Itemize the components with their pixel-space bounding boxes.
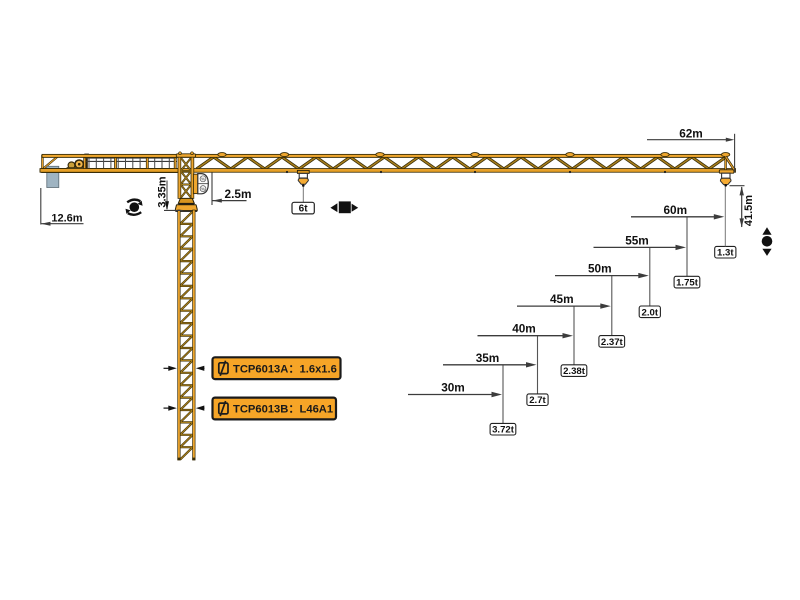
svg-text:6t: 6t bbox=[299, 204, 309, 215]
svg-text:45m: 45m bbox=[550, 292, 574, 306]
svg-text:60m: 60m bbox=[663, 203, 687, 217]
svg-text:3.35m: 3.35m bbox=[156, 176, 168, 207]
svg-text:2.5m: 2.5m bbox=[225, 187, 252, 201]
svg-text:12.6m: 12.6m bbox=[51, 213, 82, 225]
svg-text:55m: 55m bbox=[625, 233, 649, 247]
svg-text:35m: 35m bbox=[476, 351, 500, 365]
svg-text:2.7t: 2.7t bbox=[529, 395, 546, 406]
svg-text:30m: 30m bbox=[441, 381, 465, 395]
svg-text:%: % bbox=[201, 177, 206, 183]
svg-text:62m: 62m bbox=[679, 127, 703, 141]
svg-text:2.37t: 2.37t bbox=[601, 337, 624, 348]
svg-text:1.75t: 1.75t bbox=[676, 278, 699, 289]
svg-text:50m: 50m bbox=[588, 262, 612, 276]
svg-text:41.5m: 41.5m bbox=[743, 195, 755, 226]
svg-text:TCP6013B：L46A1: TCP6013B：L46A1 bbox=[233, 404, 333, 416]
svg-text:40m: 40m bbox=[512, 322, 536, 336]
svg-text:2.0t: 2.0t bbox=[642, 307, 659, 318]
svg-text:3.72t: 3.72t bbox=[492, 425, 515, 436]
svg-text:TCP6013A：1.6x1.6: TCP6013A：1.6x1.6 bbox=[233, 363, 337, 375]
svg-text:%: % bbox=[201, 186, 206, 192]
svg-text:1.3t: 1.3t bbox=[717, 248, 734, 259]
svg-text:2.38t: 2.38t bbox=[563, 366, 586, 377]
